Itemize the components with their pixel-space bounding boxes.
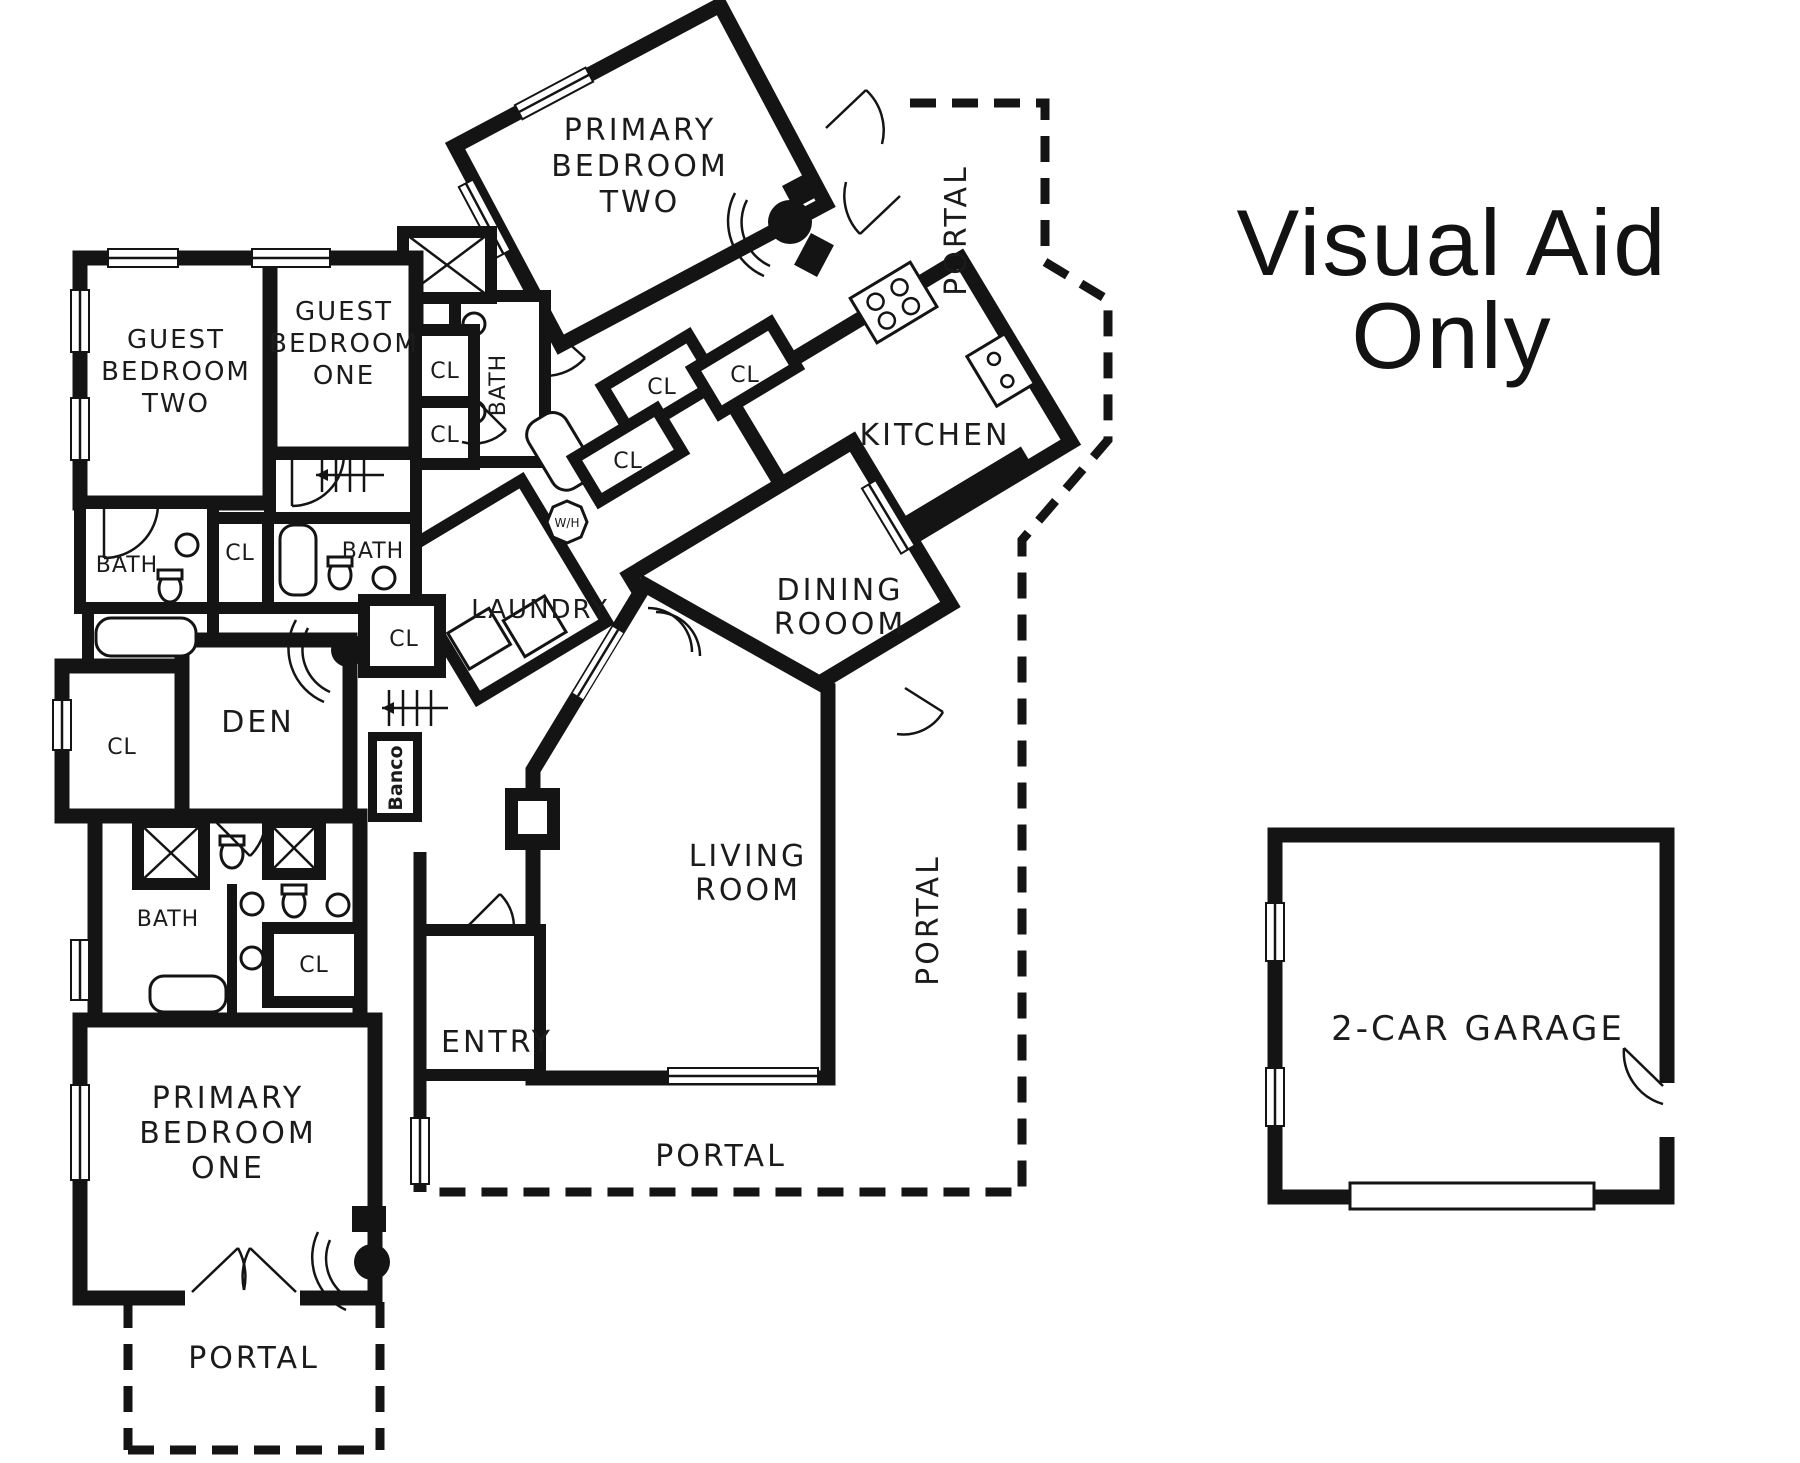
door-swing	[466, 894, 514, 928]
guest-bedroom-one-label: ONE	[313, 361, 375, 391]
primary-bedroom-two-label: TWO	[599, 185, 681, 220]
guest-bedroom-one-label: BEDROOM	[269, 329, 419, 359]
closet-x-box	[268, 822, 320, 874]
closet-label: CL	[225, 541, 255, 566]
sink-symbol	[176, 534, 198, 556]
closet-label: CL	[389, 627, 419, 652]
window	[53, 700, 71, 750]
kitchen-label: KITCHEN	[860, 418, 1011, 453]
portal-dashed-outline	[128, 1302, 380, 1450]
dining-room-label: DINING	[777, 573, 904, 608]
bathtub-symbol	[96, 618, 196, 656]
toilet-symbol	[158, 570, 182, 602]
sink-symbol	[241, 947, 263, 969]
window	[252, 249, 330, 267]
window	[1266, 903, 1284, 961]
primary-bedroom-one-label: ONE	[191, 1151, 265, 1186]
primary-bedroom-one-label: PRIMARY	[152, 1081, 304, 1116]
corner-fireplace-symbol	[505, 788, 560, 850]
window	[411, 1118, 429, 1184]
den-label: DEN	[221, 705, 295, 740]
closet-label: CL	[299, 953, 329, 978]
window	[108, 249, 178, 267]
shower-x-box	[138, 822, 204, 884]
dining-room-label: ROOOM	[774, 607, 907, 642]
sink-symbol	[373, 567, 395, 589]
door-swing	[897, 688, 943, 734]
entry-label: ENTRY	[441, 1025, 553, 1060]
bathtub-symbol	[150, 976, 226, 1012]
laundry-label: LAUNDRY	[471, 595, 609, 625]
portal-label-bottom: PORTAL	[188, 1341, 320, 1376]
primary-bedroom-one-label: BEDROOM	[139, 1116, 317, 1151]
closet-label: CL	[647, 375, 677, 400]
sink-symbol	[327, 894, 349, 916]
window	[71, 398, 89, 460]
stairs-symbol	[382, 690, 448, 726]
guest-bedroom-two-label: GUEST	[127, 325, 225, 355]
page-title-line1: Visual Aid	[1236, 190, 1667, 295]
bath-label: BATH	[137, 907, 199, 932]
closet-label: CL	[430, 359, 460, 384]
page-title-line2: Only	[1351, 283, 1552, 388]
closet-label: CL	[107, 735, 137, 760]
portal-label-lower: PORTAL	[655, 1139, 787, 1174]
window	[71, 940, 89, 1000]
door-opening	[1659, 1083, 1677, 1137]
bath-label: BATH	[96, 553, 158, 578]
closet-label: CL	[613, 449, 643, 474]
primary-bedroom-two-label: PRIMARY	[564, 113, 716, 148]
garage-label: 2-CAR GARAGE	[1331, 1009, 1625, 1049]
portal-label-right: PORTAL	[911, 854, 946, 986]
window	[668, 1068, 818, 1084]
banco-label: Banco	[385, 745, 407, 810]
living-room-label: LIVING	[689, 839, 808, 874]
garage-door-panel	[1350, 1183, 1594, 1209]
door-swing	[826, 90, 884, 144]
sink-symbol	[241, 893, 263, 915]
window	[71, 1085, 89, 1180]
floor-plan-page: Visual Aid Only PRIMARY BEDROOM TWO GUES…	[0, 0, 1800, 1463]
primary-bedroom-two-label: BEDROOM	[551, 149, 729, 184]
bath-label: BATH	[342, 539, 404, 564]
bathtub-symbol	[280, 525, 316, 595]
living-room-label: ROOM	[695, 873, 801, 908]
toilet-symbol	[282, 885, 306, 917]
window	[1266, 1068, 1284, 1126]
portal-label-upper: PORTAL	[939, 164, 974, 296]
water-heater-label: W/H	[555, 516, 580, 530]
door-swing	[844, 182, 900, 234]
window	[71, 290, 89, 352]
bath-label-vertical: BATH	[486, 354, 511, 416]
guest-bedroom-two-label: BEDROOM	[101, 357, 251, 387]
floor-plan-drawing: Visual Aid Only PRIMARY BEDROOM TWO GUES…	[0, 0, 1800, 1463]
guest-bedroom-two-label: TWO	[141, 389, 210, 419]
closet-label: CL	[430, 423, 460, 448]
closet-label: CL	[730, 363, 760, 388]
toilet-symbol	[220, 836, 244, 868]
guest-bedroom-one-label: GUEST	[295, 297, 393, 327]
